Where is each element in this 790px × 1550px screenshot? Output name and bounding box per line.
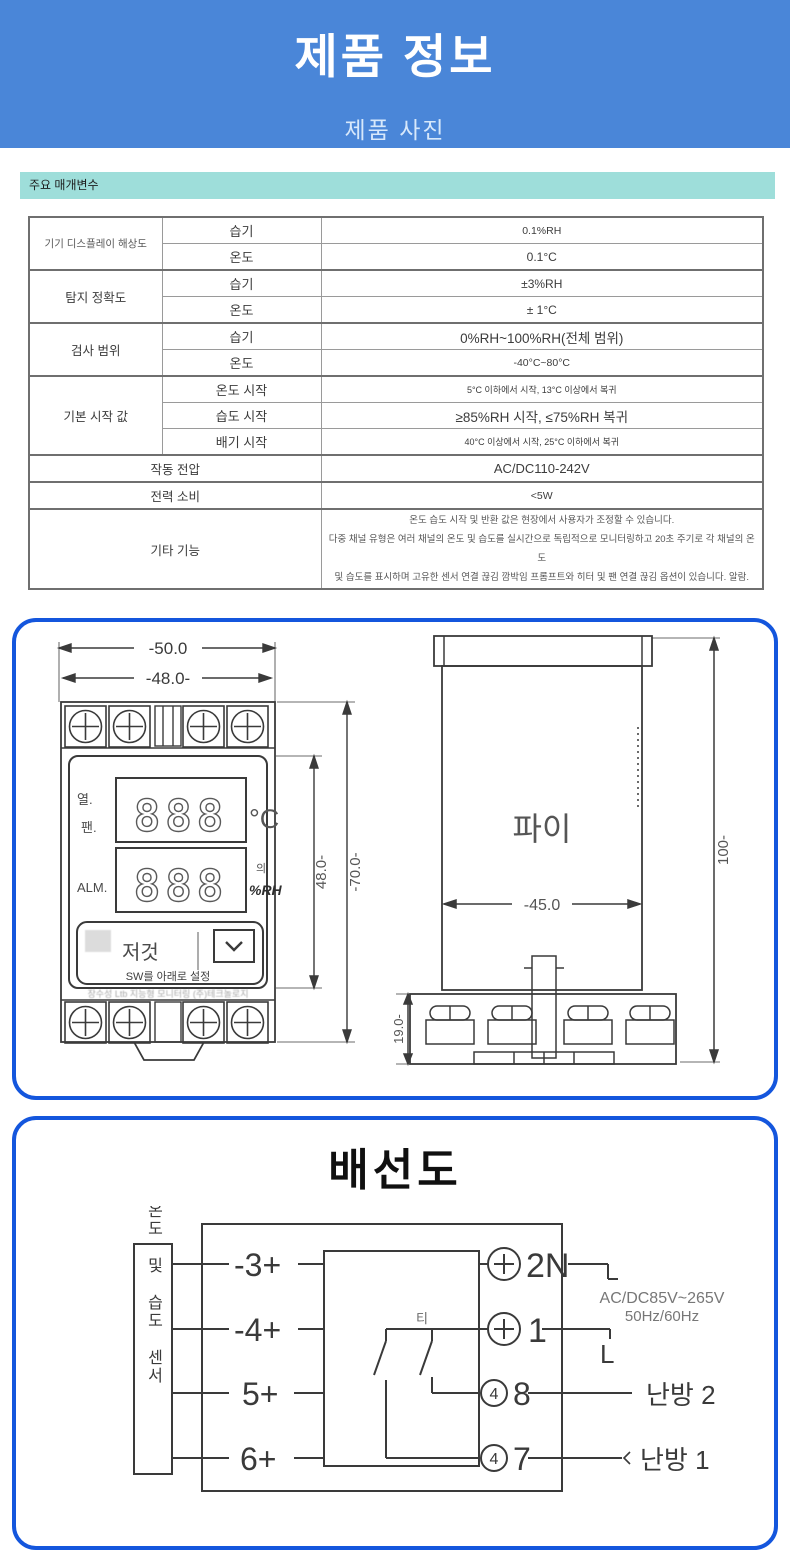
param-value: ± 1°C [321, 297, 763, 324]
param-sub: 온도 [162, 297, 321, 324]
param-category: 기타 기능 [29, 509, 321, 589]
dimensions-panel: -50.0 -48.0- 열. 팬. ALM. 888 888 °C 의 %RH… [12, 618, 778, 1100]
param-category: 검사 범위 [29, 323, 162, 376]
terminal-label-5: 5+ [242, 1376, 278, 1412]
alarm-indicator-label: ALM. [77, 880, 107, 895]
param-category: 기기 디스플레이 해상도 [29, 217, 162, 270]
table-row: 기본 시작 값 온도 시작 5°C 이하에서 시작, 13°C 이상에서 복귀 [29, 376, 763, 403]
param-value: <5W [321, 482, 763, 509]
param-value: ≥85%RH 시작, ≤75%RH 복귀 [321, 403, 763, 429]
dim-label-side-width: -45.0 [524, 897, 561, 914]
other-feature-line: 다중 채널 유형은 여러 채널의 온도 및 습도를 실시간으로 독립적으로 모니… [326, 530, 759, 568]
param-value: 온도 습도 시작 및 반환 값은 현장에서 사용자가 조정할 수 있습니다. 다… [321, 509, 763, 589]
param-category: 전력 소비 [29, 482, 321, 509]
fan-indicator-label: 팬. [81, 820, 97, 835]
dim-label-side-height: 100- [715, 835, 732, 865]
set-button-label: 저것 [122, 941, 159, 964]
switch-label: 티 [416, 1311, 428, 1326]
wiring-diagram: 4 [16, 1206, 776, 1536]
param-value: 5°C 이하에서 시작, 13°C 이상에서 복귀 [321, 376, 763, 403]
dim-label-outer-width: -50.0 [149, 639, 188, 658]
param-category: 탐지 정확도 [29, 270, 162, 323]
sw-set-label: SW를 아래로 설정 [126, 970, 211, 983]
chevron-down-icon [226, 942, 242, 950]
param-sub: 배기 시작 [162, 429, 321, 456]
param-value: 0.1%RH [321, 217, 763, 244]
other-feature-line: 온도 습도 시작 및 반환 값은 현장에서 사용자가 조정할 수 있습니다. [326, 511, 759, 530]
param-value: 0.1°C [321, 244, 763, 271]
table-row: 기타 기능 온도 습도 시작 및 반환 값은 현장에서 사용자가 조정할 수 있… [29, 509, 763, 589]
load-label-heating2: 난방 2 [646, 1380, 716, 1410]
page-subtitle: 제품 사진 [0, 111, 790, 145]
param-sub: 습기 [162, 323, 321, 350]
power-rating-line1: AC/DC85V~265V [600, 1290, 725, 1307]
param-value: AC/DC110-242V [321, 455, 763, 482]
side-view-drawing: 파이 -45.0 100- 19.0- [394, 632, 754, 1090]
humidity-display-digits: 888 [134, 861, 228, 912]
temp-display-digits: 888 [134, 791, 228, 842]
param-value: 40°C 이상에서 시작, 25°C 이하에서 복귀 [321, 429, 763, 456]
side-body-label: 파이 [513, 811, 572, 847]
humidity-unit-label: %RH [249, 882, 283, 898]
brand-watermark: 장수성 Ltb 지능형 모니터링 (주)테크놀로지 [88, 988, 249, 999]
wiring-title: 배선도 [16, 1134, 774, 1198]
load-label-heating1: 난방 1 [640, 1445, 710, 1475]
table-row: 검사 범위 습기 0%RH~100%RH(전체 범위) [29, 323, 763, 350]
live-wire-label: L [600, 1339, 614, 1369]
param-value: ±3%RH [321, 270, 763, 297]
table-row: 전력 소비 <5W [29, 482, 763, 509]
dim-label-terminal-height: 19.0- [394, 1014, 406, 1044]
param-sub: 습기 [162, 217, 321, 244]
heat-indicator-label: 열. [77, 792, 93, 807]
terminal-label-4: -4+ [234, 1312, 281, 1348]
table-row: 탐지 정확도 습기 ±3%RH [29, 270, 763, 297]
terminal-label-7: 7 [513, 1441, 531, 1477]
param-category: 기본 시작 값 [29, 376, 162, 455]
table-row: 기기 디스플레이 해상도 습기 0.1%RH [29, 217, 763, 244]
sensor-label: 양방향 온도 및 습도 센서 [145, 1206, 163, 1385]
page-header: 제품 정보 제품 사진 [0, 0, 790, 148]
param-sub: 온도 시작 [162, 376, 321, 403]
dim-label-inner-width: -48.0- [146, 669, 190, 688]
terminal-label-1: 1 [528, 1312, 547, 1350]
other-feature-line: 및 습도를 표시하며 고유한 센서 연결 끊김 깜박임 프롬프트와 히터 및 팬… [326, 568, 759, 587]
terminal-label-2n: 2N [526, 1247, 569, 1285]
param-sub: 습도 시작 [162, 403, 321, 429]
param-value: -40°C~80°C [321, 350, 763, 377]
param-sub: 온도 [162, 350, 321, 377]
param-category: 작동 전압 [29, 455, 321, 482]
terminal-label-8: 8 [513, 1376, 531, 1412]
terminal-label-6: 6+ [240, 1441, 276, 1477]
dim-label-body-height: -70.0- [347, 852, 364, 891]
power-rating-line2: 50Hz/60Hz [625, 1308, 699, 1325]
page-title: 제품 정보 [0, 0, 790, 87]
terminal-label-3: -3+ [234, 1247, 281, 1283]
dim-label-display-height: 48.0- [313, 855, 330, 889]
front-view-drawing: -50.0 -48.0- 열. 팬. ALM. 888 888 °C 의 %RH… [30, 632, 378, 1090]
params-table: 기기 디스플레이 해상도 습기 0.1%RH 온도 0.1°C 탐지 정확도 습… [28, 216, 764, 590]
temp-unit-label: °C [249, 804, 279, 834]
table-row: 작동 전압 AC/DC110-242V [29, 455, 763, 482]
humidity-tag-label: 의 [256, 862, 266, 875]
params-section-label: 주요 매개변수 [20, 172, 775, 199]
param-sub: 온도 [162, 244, 321, 271]
param-value: 0%RH~100%RH(전체 범위) [321, 323, 763, 350]
wiring-panel: 배선도 4 [12, 1116, 778, 1550]
param-sub: 습기 [162, 270, 321, 297]
